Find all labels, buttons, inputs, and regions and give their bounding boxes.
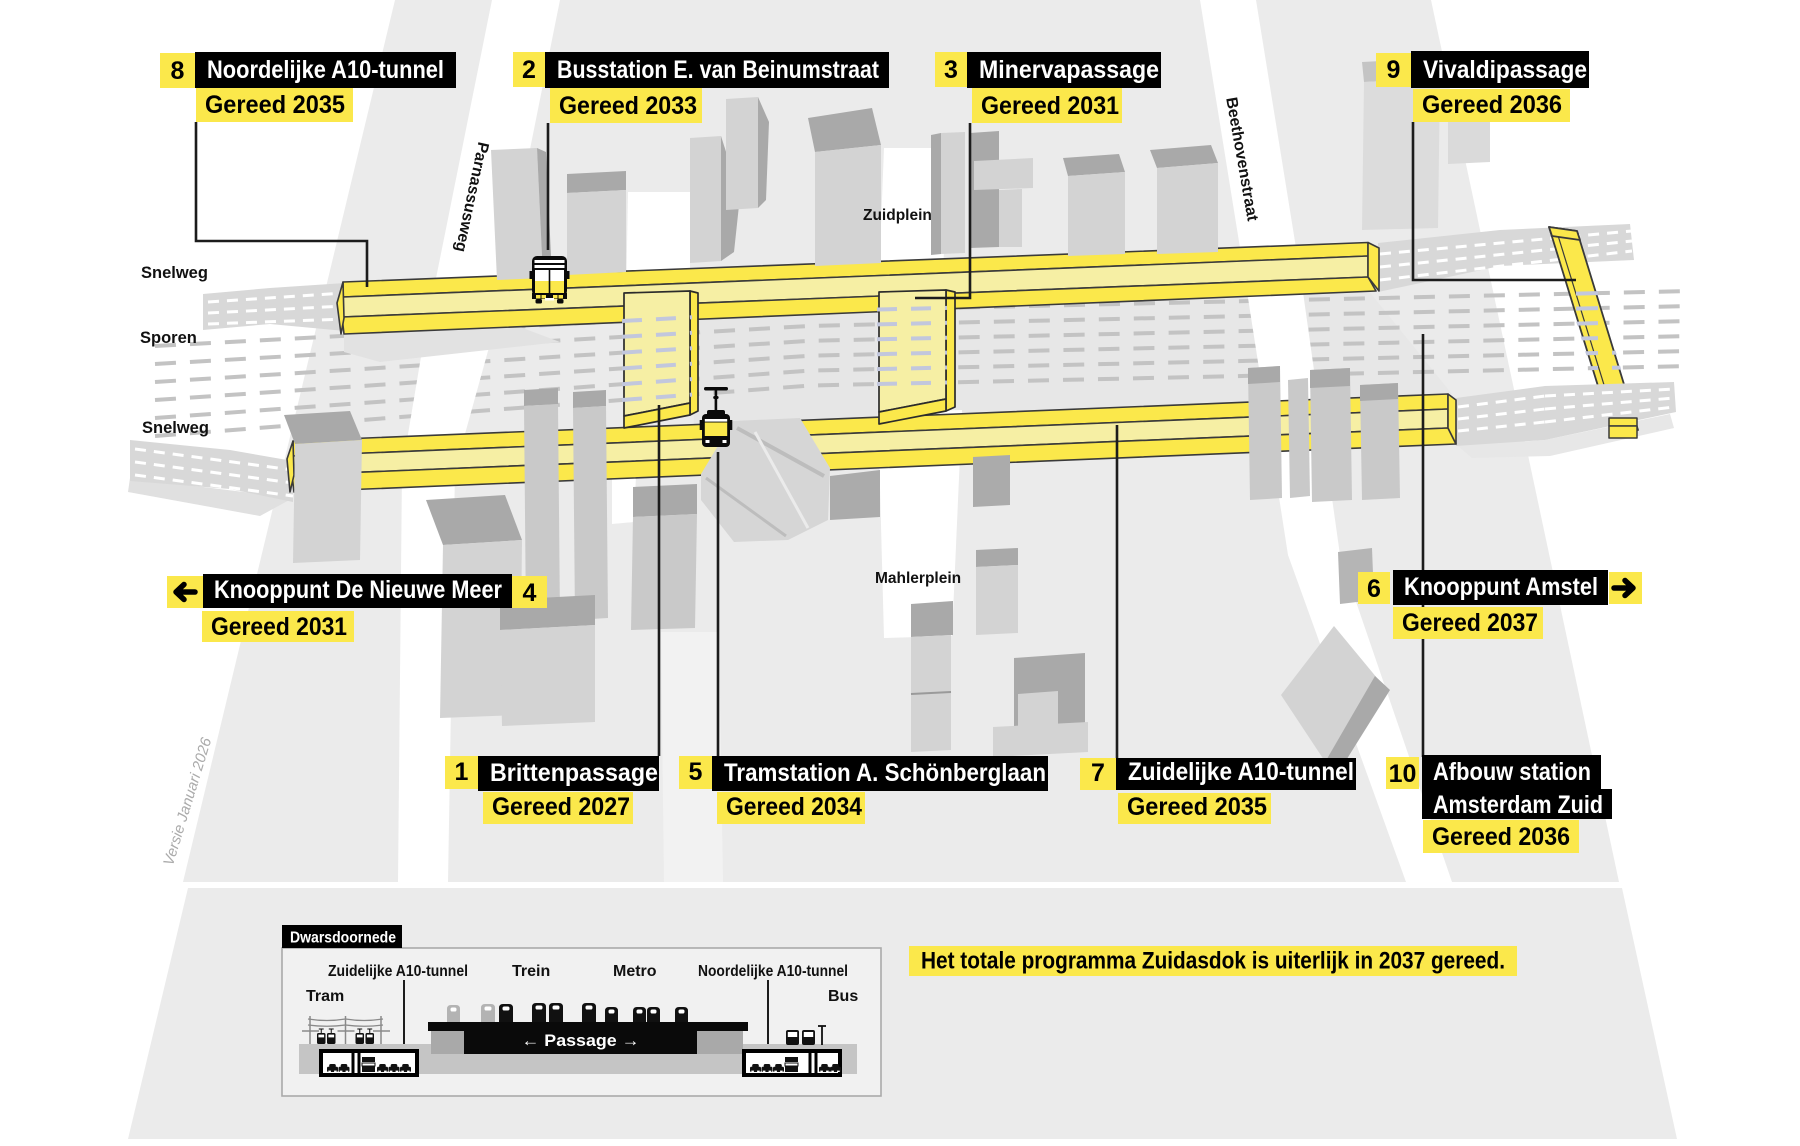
- svg-text:Amsterdam Zuid: Amsterdam Zuid: [1433, 791, 1603, 819]
- svg-text:7: 7: [1091, 759, 1105, 787]
- svg-text:2: 2: [522, 56, 536, 84]
- svg-text:Minervapassage: Minervapassage: [979, 56, 1159, 84]
- svg-text:8: 8: [171, 57, 185, 85]
- svg-text:Knooppunt De Nieuwe Meer: Knooppunt De Nieuwe Meer: [214, 576, 502, 604]
- svg-text:3: 3: [944, 56, 958, 84]
- svg-text:Zuidelijke A10-tunnel: Zuidelijke A10-tunnel: [328, 963, 468, 980]
- svg-text:Gereed 2033: Gereed 2033: [559, 92, 697, 120]
- svg-text:Snelweg: Snelweg: [142, 419, 209, 437]
- svg-text:Gereed 2036: Gereed 2036: [1422, 91, 1562, 119]
- svg-text:Zuidplein: Zuidplein: [863, 207, 932, 224]
- svg-text:Gereed 2036: Gereed 2036: [1432, 823, 1570, 851]
- svg-text:1: 1: [455, 758, 469, 786]
- svg-text:Afbouw station: Afbouw station: [1433, 758, 1591, 786]
- svg-text:Gereed 2035: Gereed 2035: [205, 91, 345, 119]
- svg-text:Dwarsdoornede: Dwarsdoornede: [290, 930, 396, 947]
- svg-text:Tramstation A. Schönberglaan: Tramstation A. Schönberglaan: [724, 759, 1046, 787]
- svg-text:Het totale programma Zuidasdok: Het totale programma Zuidasdok is uiterl…: [921, 948, 1505, 975]
- svg-text:Sporen: Sporen: [140, 329, 197, 347]
- svg-text:Busstation E. van Beinumstraat: Busstation E. van Beinumstraat: [557, 56, 880, 84]
- svg-text:Knooppunt Amstel: Knooppunt Amstel: [1404, 573, 1598, 601]
- svg-text:Gereed 2027: Gereed 2027: [492, 793, 630, 821]
- svg-text:Gereed 2034: Gereed 2034: [726, 793, 862, 821]
- svg-text:Gereed 2035: Gereed 2035: [1127, 793, 1267, 821]
- svg-text:6: 6: [1367, 575, 1381, 603]
- svg-text:Gereed 2031: Gereed 2031: [211, 613, 347, 641]
- svg-text:Zuidelijke A10-tunnel: Zuidelijke A10-tunnel: [1128, 758, 1354, 786]
- svg-text:Noordelijke A10-tunnel: Noordelijke A10-tunnel: [207, 56, 444, 84]
- svg-text:Bus: Bus: [828, 988, 858, 1005]
- svg-text:Gereed 2031: Gereed 2031: [981, 92, 1119, 120]
- svg-text:Mahlerplein: Mahlerplein: [875, 570, 961, 587]
- svg-text:Brittenpassage: Brittenpassage: [490, 759, 658, 787]
- svg-text:5: 5: [689, 758, 703, 786]
- svg-text:Trein: Trein: [512, 963, 550, 980]
- svg-text:← Passage →: ← Passage →: [522, 1031, 640, 1050]
- svg-text:10: 10: [1389, 760, 1417, 788]
- svg-text:Noordelijke A10-tunnel: Noordelijke A10-tunnel: [698, 963, 848, 980]
- svg-text:Metro: Metro: [613, 963, 657, 980]
- svg-text:4: 4: [523, 579, 537, 607]
- svg-text:Tram: Tram: [306, 988, 344, 1005]
- svg-text:Gereed 2037: Gereed 2037: [1402, 609, 1538, 637]
- svg-text:Snelweg: Snelweg: [141, 264, 208, 282]
- svg-text:9: 9: [1387, 56, 1401, 84]
- svg-text:Vivaldipassage: Vivaldipassage: [1423, 56, 1587, 84]
